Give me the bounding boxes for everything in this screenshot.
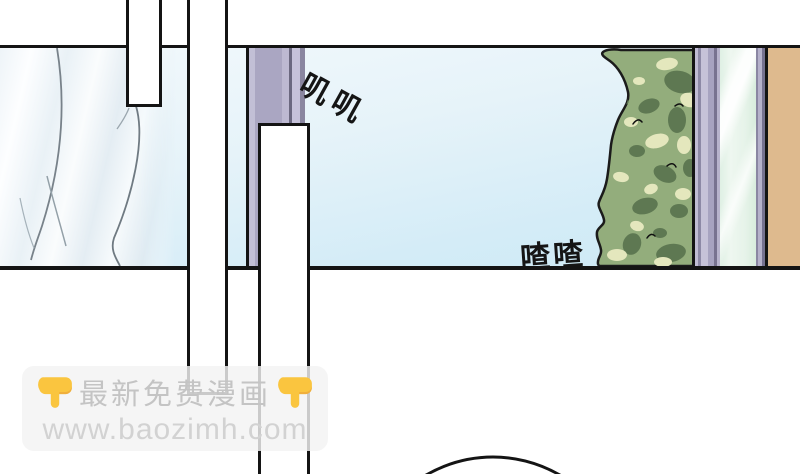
tan-wall [768,48,800,266]
glass-pane [720,48,756,266]
character-head-outline [352,452,636,474]
watermark-title: 最新免费漫画 [79,371,271,413]
gutter-bar-left [126,0,162,107]
comic-page: 叽叽 喳喳 最新免费漫画 www.baozimh.com [0,0,800,474]
gutter-bar-middle [187,0,228,395]
pointing-down-emoji-icon [36,373,74,411]
window-frame-right-purple-2 [756,48,765,266]
site-watermark-box: 最新免费漫画 www.baozimh.com [22,366,328,451]
sfx-bird-chirp-zhazha: 喳喳 [519,229,588,266]
panel-top-border [0,45,800,48]
pointing-down-emoji-icon [276,373,314,411]
comic-panel-window-scene: 叽叽 喳喳 [0,48,800,266]
tree-foliage [575,48,695,266]
watermark-title-row: 最新免费漫画 [36,371,314,413]
window-frame-right-purple [695,48,720,266]
panel-bottom-border [0,266,800,270]
watermark-url: www.baozimh.com [42,413,307,447]
